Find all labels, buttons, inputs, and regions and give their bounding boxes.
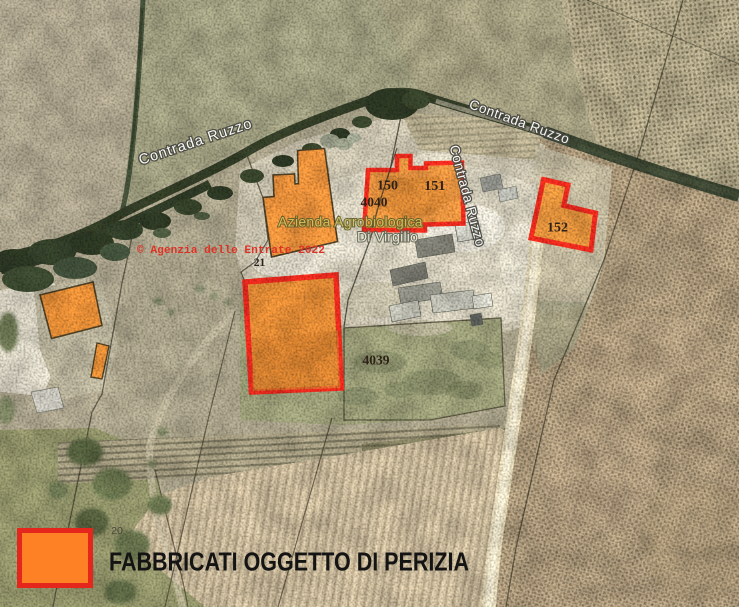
svg-text:150: 150 (377, 179, 398, 194)
svg-text:21: 21 (254, 257, 266, 269)
svg-text:152: 152 (547, 221, 568, 236)
svg-text:© Agenzia delle Entrate 2022: © Agenzia delle Entrate 2022 (137, 245, 325, 257)
svg-text:Di Virgilio: Di Virgilio (357, 229, 418, 245)
svg-text:151: 151 (424, 179, 445, 194)
svg-text:FABBRICATI OGGETTO DI PERIZIA: FABBRICATI OGGETTO DI PERIZIA (109, 549, 469, 577)
svg-text:20: 20 (111, 525, 123, 537)
svg-text:Azienda Agrobiologica: Azienda Agrobiologica (278, 214, 423, 230)
svg-text:4040: 4040 (361, 195, 388, 210)
svg-text:4039: 4039 (363, 353, 390, 368)
